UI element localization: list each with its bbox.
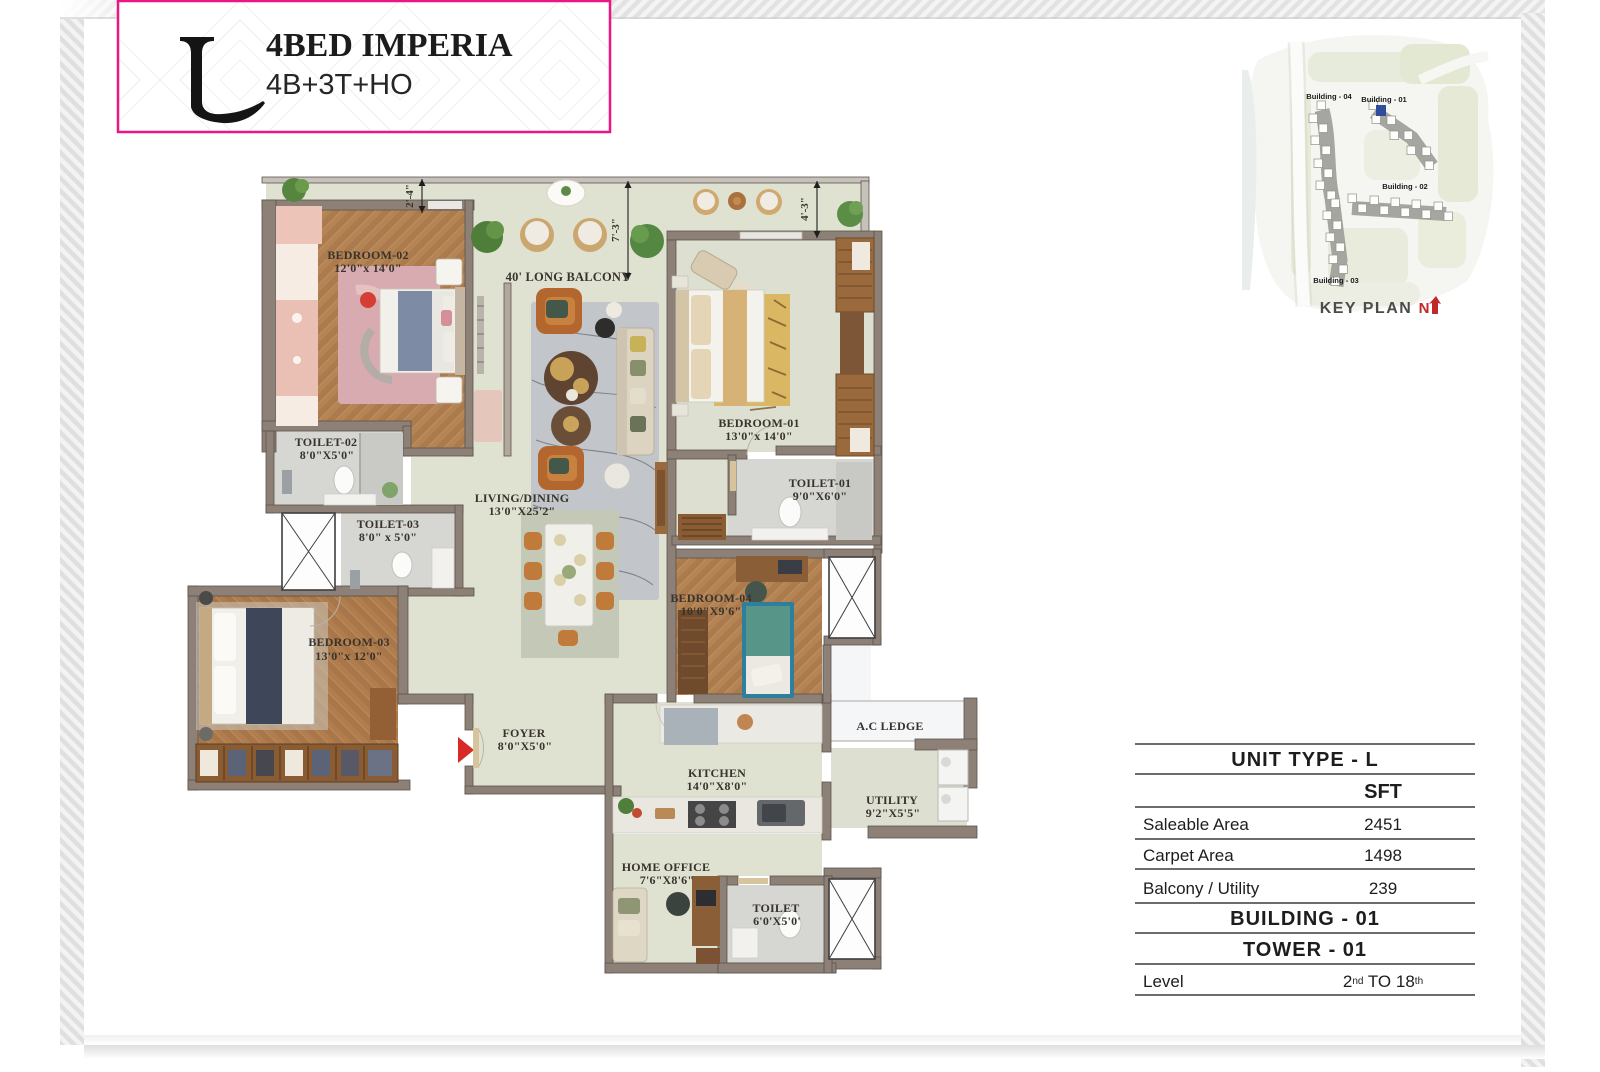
svg-text:Carpet Area: Carpet Area [1143,846,1234,865]
svg-text:9'0"X6'0": 9'0"X6'0" [793,489,847,503]
svg-text:9'2"X5'5": 9'2"X5'5" [866,806,920,820]
svg-text:8'0"X5'0": 8'0"X5'0" [498,739,552,753]
svg-text:TOILET: TOILET [752,901,799,915]
svg-text:BEDROOM-04: BEDROOM-04 [670,591,751,605]
svg-text:UNIT TYPE - L: UNIT TYPE - L [1231,749,1378,771]
svg-text:Saleable Area: Saleable Area [1143,815,1249,834]
svg-text:Building - 03: Building - 03 [1313,276,1359,285]
svg-text:BEDROOM-03: BEDROOM-03 [308,635,389,649]
svg-text:1498: 1498 [1364,846,1402,865]
svg-text:Building - 02: Building - 02 [1382,182,1428,191]
svg-text:FOYER: FOYER [503,726,546,740]
svg-text:Balcony / Utility: Balcony / Utility [1143,879,1260,898]
svg-text:KITCHEN: KITCHEN [688,766,746,780]
svg-text:239: 239 [1369,879,1397,898]
svg-text:13'0"X25'2": 13'0"X25'2" [489,504,556,518]
svg-text:10'0"X9'6": 10'0"X9'6" [681,604,742,618]
svg-text:13'0"x 12'0": 13'0"x 12'0" [315,649,382,663]
svg-text:SFT: SFT [1364,781,1402,803]
svg-text:TOILET-02: TOILET-02 [295,435,358,449]
svg-text:TOILET-03: TOILET-03 [357,517,420,531]
svg-text:13'0"x 14'0": 13'0"x 14'0" [725,429,792,443]
svg-text:7'-3": 7'-3" [610,218,622,242]
svg-text:7'6"X8'6": 7'6"X8'6" [640,873,694,887]
svg-text:BEDROOM-01: BEDROOM-01 [718,416,799,430]
svg-text:8'0" x 5'0": 8'0" x 5'0" [359,530,417,544]
svg-text:Building - 01: Building - 01 [1361,95,1407,104]
svg-text:2'-4": 2'-4" [404,184,416,208]
svg-text:4'-3": 4'-3" [799,197,811,221]
svg-text:BEDROOM-02: BEDROOM-02 [327,248,408,262]
svg-text:4B+3T+HO: 4B+3T+HO [266,69,413,101]
svg-text:12'0"x 14'0": 12'0"x 14'0" [334,261,401,275]
svg-text:LIVING/DINING: LIVING/DINING [475,491,570,505]
svg-text:HOME OFFICE: HOME OFFICE [622,860,711,874]
svg-text:8'0"X5'0": 8'0"X5'0" [300,448,354,462]
svg-text:4BED IMPERIA: 4BED IMPERIA [266,27,513,64]
svg-text:14'0"X8'0": 14'0"X8'0" [687,779,748,793]
svg-text:BUILDING - 01: BUILDING - 01 [1230,908,1380,930]
svg-text:TOILET-01: TOILET-01 [789,476,852,490]
svg-text:Level: Level [1143,972,1184,991]
svg-text:N: N [1419,300,1430,317]
svg-text:2451: 2451 [1364,815,1402,834]
svg-text:UTILITY: UTILITY [866,793,918,807]
svg-text:KEY PLAN: KEY PLAN [1320,300,1413,317]
svg-text:TOWER - 01: TOWER - 01 [1243,939,1367,961]
svg-text:Building - 04: Building - 04 [1306,92,1352,101]
svg-text:A.C LEDGE: A.C LEDGE [856,719,923,733]
svg-text:6'0'X5'0': 6'0'X5'0' [753,914,801,928]
svg-text:40' LONG BALCONY: 40' LONG BALCONY [506,270,631,284]
